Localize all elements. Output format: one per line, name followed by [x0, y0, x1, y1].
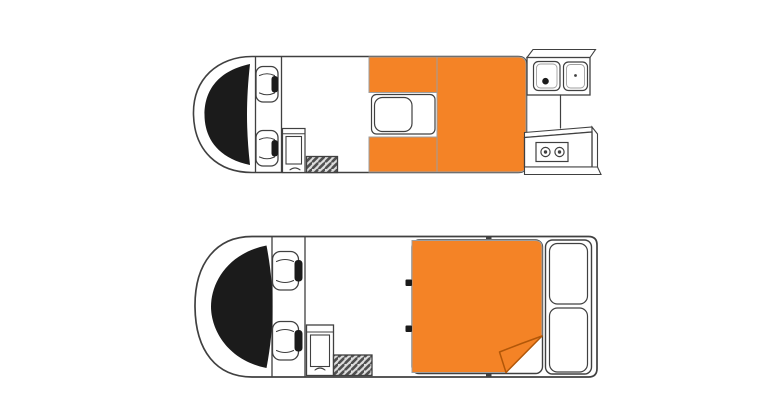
rear-cushion-bottom	[550, 308, 588, 372]
entry-step-icon	[307, 157, 338, 173]
campervan-floorplans	[0, 0, 768, 413]
fridge-cabinet	[307, 325, 334, 376]
rear-seat-block	[437, 57, 526, 172]
rear-kitchen-stove-unit	[525, 127, 602, 175]
door-mark-top	[486, 236, 492, 239]
day-layout-diagram	[193, 50, 601, 175]
headrest-icon	[272, 140, 279, 157]
floorplan-canvas	[0, 0, 768, 413]
rear-cushion-top	[550, 244, 588, 305]
cab-seat-driver	[256, 67, 278, 103]
fridge-cabinet	[283, 129, 306, 173]
bed-hinge-mark	[406, 280, 413, 287]
door-mark-bottom	[486, 374, 492, 377]
bed-hinge-mark	[406, 326, 413, 333]
rear-kitchen-sink-unit	[527, 50, 596, 129]
sink-drain	[542, 78, 549, 85]
cab-seat-passenger	[273, 322, 303, 361]
cab-seat-passenger	[256, 131, 278, 167]
dinette-bench-rear	[369, 137, 437, 172]
cab-seat-driver	[273, 252, 303, 291]
headrest-icon	[272, 76, 279, 93]
entry-step-icon	[334, 355, 373, 376]
headrest-icon	[295, 330, 303, 352]
dinette-bench-front	[369, 57, 437, 93]
night-layout-diagram	[195, 236, 597, 377]
dinette-table	[372, 95, 436, 135]
sink-drain	[574, 74, 577, 77]
headrest-icon	[295, 260, 303, 282]
